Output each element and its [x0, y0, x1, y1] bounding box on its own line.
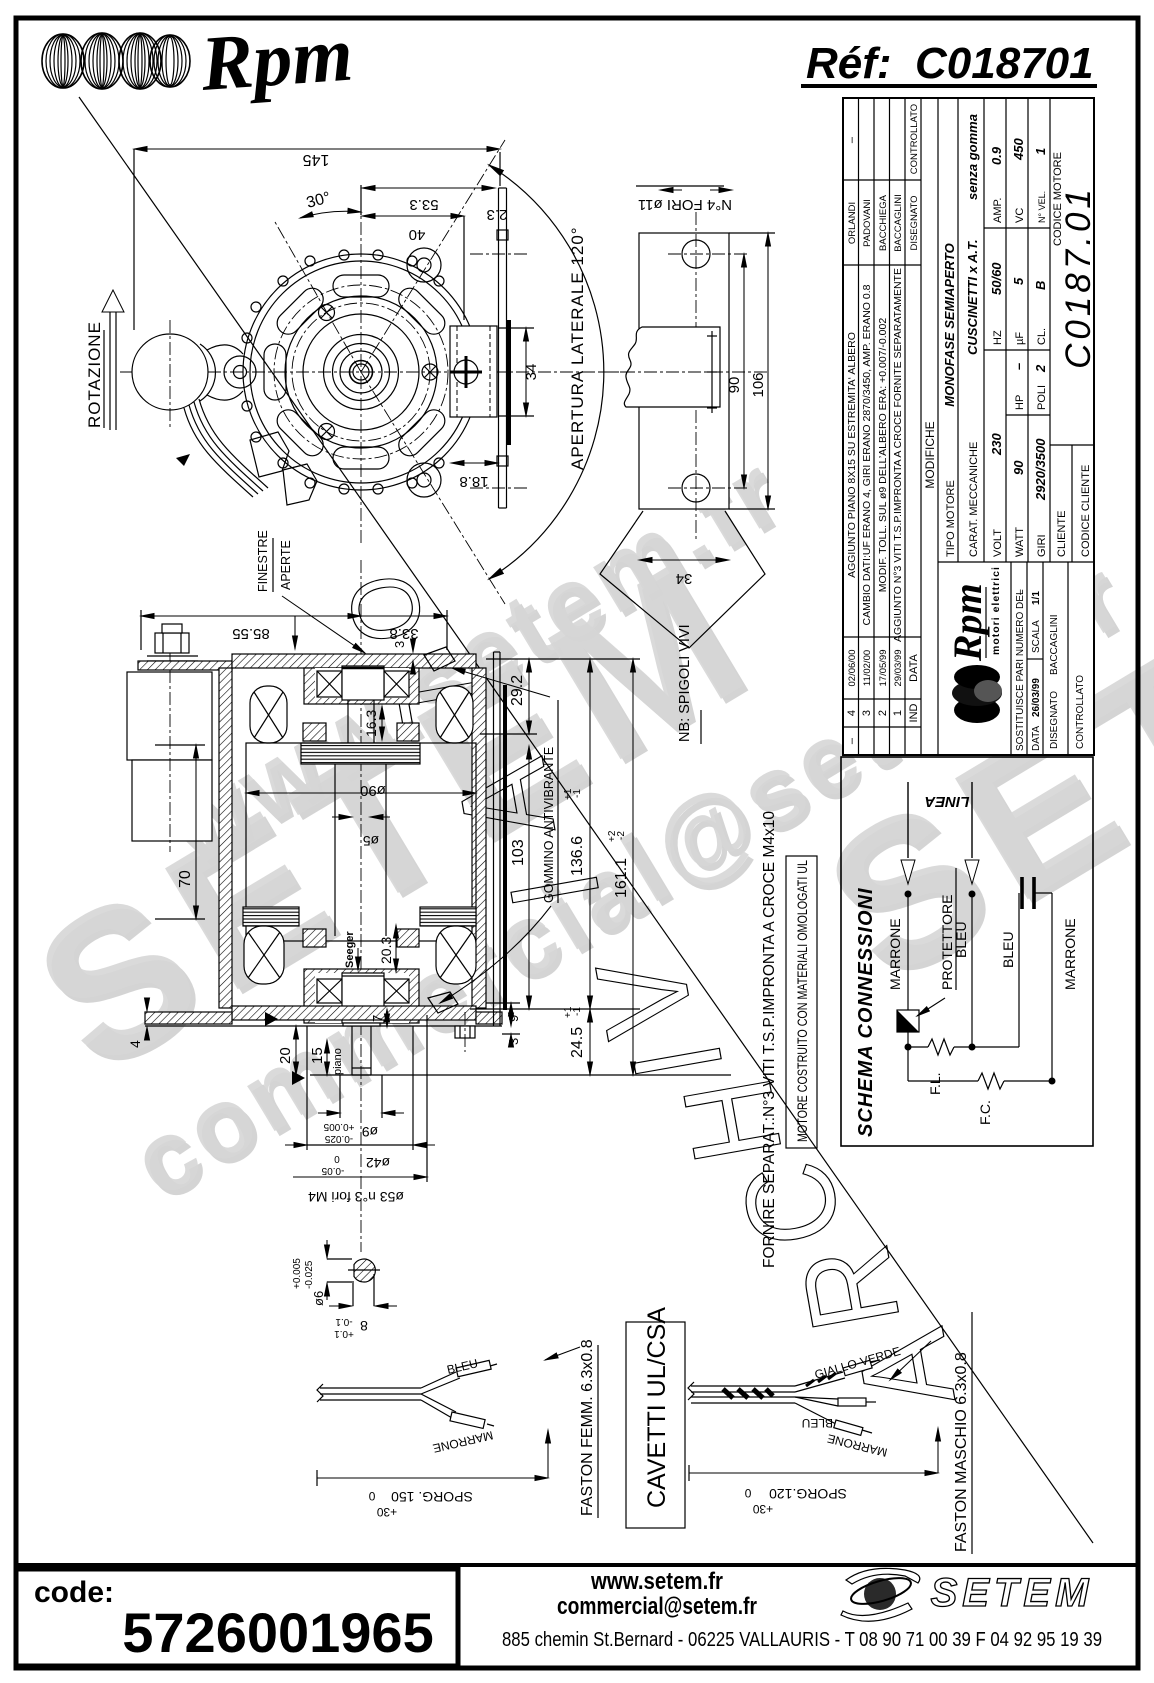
svg-text:20.3: 20.3 — [378, 937, 394, 964]
svg-text:FASTON MASCHIO 6.3x0.8: FASTON MASCHIO 6.3x0.8 — [953, 1352, 970, 1552]
svg-text:29.2: 29.2 — [509, 675, 526, 706]
svg-text:1: 1 — [1033, 148, 1048, 155]
svg-text:FORNIRE SEPARAT.:N°3 VITI T.S.: FORNIRE SEPARAT.:N°3 VITI T.S.P.IMPRONTA… — [761, 811, 778, 1268]
svg-text:3: 3 — [506, 1038, 521, 1045]
svg-text:µF: µF — [1014, 332, 1026, 345]
svg-text:33.8: 33.8 — [389, 625, 418, 642]
svg-text:HP: HP — [1014, 395, 1026, 410]
svg-text:0: 0 — [744, 1486, 751, 1500]
svg-text:161.1: 161.1 — [613, 858, 630, 898]
svg-text:ø5: ø5 — [363, 833, 380, 849]
svg-text:ø90: ø90 — [360, 782, 386, 799]
svg-text:85.55: 85.55 — [232, 625, 270, 642]
svg-text:29/03/99: 29/03/99 — [893, 650, 904, 687]
svg-text:0.9: 0.9 — [989, 146, 1004, 165]
svg-text:450: 450 — [1011, 138, 1026, 161]
svg-text:136.6: 136.6 — [569, 836, 586, 876]
svg-text:0: 0 — [334, 1153, 340, 1164]
svg-text:BLEU: BLEU — [953, 921, 969, 958]
svg-text:70: 70 — [177, 870, 194, 888]
svg-text:ORLANDI: ORLANDI — [847, 202, 858, 244]
svg-text:GOMMINO ANTIVIBRANTE: GOMMINO ANTIVIBRANTE — [542, 747, 556, 903]
svg-text:BACCHIEGA: BACCHIEGA — [878, 194, 889, 251]
svg-text:POLI: POLI — [1036, 385, 1048, 410]
svg-text:PADOVANI: PADOVANI — [862, 199, 873, 247]
svg-text:-0.1: -0.1 — [335, 1316, 353, 1327]
svg-text:www.setem.fr: www.setem.fr — [590, 1568, 723, 1595]
svg-text:18.8: 18.8 — [459, 473, 488, 490]
svg-text:HZ: HZ — [992, 330, 1004, 345]
svg-text:AGGIUNTO N°3 VITI T.S.P.IMPRON: AGGIUNTO N°3 VITI T.S.P.IMPRONTA A CROCE… — [892, 268, 904, 642]
svg-text:–: – — [846, 737, 858, 744]
svg-text:34: 34 — [523, 364, 540, 381]
svg-text:commercial@setem.fr: commercial@setem.fr — [557, 1593, 757, 1620]
svg-text:Seeger: Seeger — [344, 931, 356, 968]
svg-text:230: 230 — [989, 433, 1004, 456]
svg-text:SPORG.120: SPORG.120 — [769, 1486, 847, 1502]
svg-text:2: 2 — [1033, 364, 1048, 373]
svg-text:+0.005: +0.005 — [323, 1121, 354, 1132]
svg-text:AMP.: AMP. — [992, 198, 1004, 223]
svg-text:2920/3500: 2920/3500 — [1033, 438, 1048, 501]
svg-text:FINESTRE: FINESTRE — [256, 530, 270, 592]
svg-text:APERTURA LATERALE 120°: APERTURA LATERALE 120° — [568, 226, 587, 470]
svg-text:8: 8 — [360, 1318, 368, 1334]
svg-text:GIRI: GIRI — [1036, 534, 1048, 557]
svg-text:senza gomma: senza gomma — [965, 114, 980, 200]
svg-text:WATT: WATT — [1014, 527, 1026, 557]
svg-text:MARRONE: MARRONE — [1062, 918, 1078, 990]
svg-text:BACCAGLINI: BACCAGLINI — [1049, 614, 1060, 675]
svg-text:17/05/99: 17/05/99 — [878, 650, 889, 687]
svg-text:motori elettrici: motori elettrici — [990, 566, 1002, 655]
svg-text:24.5: 24.5 — [569, 1027, 586, 1058]
svg-text:MODIF. TOLL. SUL ø9 DELL’ALBER: MODIF. TOLL. SUL ø9 DELL’ALBERO ERA: +0.… — [877, 318, 889, 593]
svg-text:15: 15 — [309, 1047, 326, 1064]
svg-text:SCALA: SCALA — [1031, 620, 1042, 653]
svg-text:106: 106 — [750, 372, 767, 397]
svg-text:1: 1 — [892, 710, 904, 716]
svg-text:DISEGNATO: DISEGNATO — [909, 195, 920, 250]
svg-text:02/06/00: 02/06/00 — [847, 650, 858, 687]
svg-text:CARAT. MECCANICHE: CARAT. MECCANICHE — [968, 442, 980, 557]
svg-text:–: – — [1011, 363, 1026, 370]
svg-text:53.3: 53.3 — [409, 196, 438, 213]
svg-text:ROTAZIONE: ROTAZIONE — [85, 321, 104, 428]
svg-text:11/02/00: 11/02/00 — [862, 650, 873, 686]
svg-text:CAVETTI UL/CSA: CAVETTI UL/CSA — [643, 1307, 671, 1508]
svg-text:7: 7 — [370, 1015, 385, 1022]
svg-text:Rpm: Rpm — [945, 583, 990, 662]
svg-text:20: 20 — [277, 1047, 294, 1064]
svg-text:90: 90 — [726, 377, 743, 394]
svg-text:+0.005: +0.005 — [292, 1258, 303, 1289]
svg-text:MODIFICHE: MODIFICHE — [923, 421, 937, 488]
svg-text:4: 4 — [127, 1040, 143, 1048]
svg-text:5: 5 — [1011, 277, 1026, 285]
svg-text:ø42: ø42 — [366, 1155, 390, 1171]
svg-text:CONTROLLATO: CONTROLLATO — [1075, 675, 1086, 749]
svg-text:LINEA: LINEA — [925, 793, 970, 810]
svg-text:-0.05: -0.05 — [321, 1165, 344, 1176]
svg-text:ø9: ø9 — [362, 1124, 379, 1140]
svg-text:SPORG. 150: SPORG. 150 — [391, 1489, 473, 1505]
svg-text:DISEGNATO: DISEGNATO — [1049, 691, 1060, 749]
svg-text:F.C.: F.C. — [977, 1100, 993, 1125]
svg-text:MONOFASE SEMIAPERTO: MONOFASE SEMIAPERTO — [942, 243, 957, 407]
svg-text:B: B — [1033, 281, 1048, 290]
svg-text:FASTON FEMM. 6.3x0.8: FASTON FEMM. 6.3x0.8 — [579, 1339, 596, 1516]
svg-text:MARRONE: MARRONE — [887, 918, 903, 990]
svg-text:DATA: DATA — [1031, 725, 1042, 751]
svg-text:VOLT: VOLT — [992, 529, 1004, 557]
svg-text:DATA: DATA — [908, 653, 920, 681]
svg-text:–: – — [846, 136, 858, 143]
svg-text:16.3: 16.3 — [363, 710, 379, 737]
svg-text:AGGIUNTO PIANO 8X15 SU ESTREMI: AGGIUNTO PIANO 8X15 SU ESTREMITA‘ ALBERO — [846, 332, 858, 578]
svg-text:SETEM: SETEM — [931, 1571, 1094, 1615]
svg-text:26/03/99: 26/03/99 — [1031, 678, 1042, 717]
svg-text:BLEU: BLEU — [802, 1416, 833, 1430]
svg-text:1/1: 1/1 — [1031, 591, 1042, 605]
svg-text:145: 145 — [303, 151, 330, 168]
svg-text:-1: -1 — [572, 1007, 583, 1016]
svg-text:40: 40 — [409, 226, 426, 243]
svg-text:2.3: 2.3 — [487, 206, 508, 223]
svg-text:3: 3 — [861, 710, 873, 716]
svg-text:NB: SPIGOLI VIVI: NB: SPIGOLI VIVI — [677, 624, 693, 742]
svg-text:code:: code: — [34, 1576, 114, 1609]
svg-text:TIPO MOTORE: TIPO MOTORE — [945, 480, 957, 557]
svg-text:CODICE CLIENTE: CODICE CLIENTE — [1080, 465, 1092, 557]
svg-text:–: – — [1015, 589, 1026, 595]
svg-text:CUSCINETTI x A.T.: CUSCINETTI x A.T. — [965, 239, 980, 355]
svg-text:CL.: CL. — [1036, 328, 1048, 345]
svg-text:MOTORE COSTRUITO CON MATERIALI: MOTORE COSTRUITO CON MATERIALI OMOLOGATI… — [794, 860, 810, 1142]
svg-text:IND: IND — [908, 703, 920, 722]
svg-text:BLEU: BLEU — [1000, 931, 1016, 968]
svg-text:50/60: 50/60 — [989, 262, 1004, 295]
svg-text:BACCAGLINI: BACCAGLINI — [893, 194, 904, 252]
svg-text:F.L.: F.L. — [927, 1072, 943, 1095]
svg-text:-0.025: -0.025 — [324, 1133, 353, 1144]
svg-text:-1: -1 — [572, 789, 583, 798]
svg-text:C0187.01: C0187.01 — [1059, 185, 1098, 369]
svg-text:CONTROLLATO: CONTROLLATO — [909, 104, 920, 174]
svg-text:885 chemin St.Bernard - 0622: 885 chemin St.Bernard - 06225 VALLAURIS … — [502, 1629, 1102, 1651]
svg-text:SOSTITUISCE PARI NUMERO DEL: SOSTITUISCE PARI NUMERO DEL — [1015, 589, 1026, 751]
svg-text:3: 3 — [392, 641, 407, 648]
svg-text:VC: VC — [1014, 208, 1026, 223]
svg-text:9: 9 — [506, 1015, 521, 1022]
svg-text:90: 90 — [1011, 460, 1026, 475]
svg-text:4: 4 — [846, 710, 858, 716]
svg-text:5726001965: 5726001965 — [122, 1601, 433, 1664]
svg-text:+30: +30 — [376, 1505, 397, 1519]
svg-text:CAMBIO DATI:UF ERANO 4, GIRI E: CAMBIO DATI:UF ERANO 4, GIRI ERANO 2870/… — [861, 284, 873, 625]
svg-text:N° VEL.: N° VEL. — [1037, 191, 1047, 223]
svg-text:-2: -2 — [616, 831, 627, 840]
svg-text:SCHEMA CONNESSIONI: SCHEMA CONNESSIONI — [855, 887, 877, 1137]
svg-text:2: 2 — [877, 710, 889, 716]
svg-text:103: 103 — [510, 839, 527, 866]
svg-text:Rpm: Rpm — [197, 10, 355, 107]
svg-text:piano: piano — [332, 1048, 344, 1075]
svg-text:+30: +30 — [752, 1502, 773, 1516]
svg-text:-0.025: -0.025 — [304, 1260, 315, 1289]
svg-text:ø53 n°3 fori M4: ø53 n°3 fori M4 — [308, 1189, 404, 1205]
svg-text:+0.1: +0.1 — [334, 1328, 354, 1339]
svg-text:CLIENTE: CLIENTE — [1056, 511, 1068, 557]
svg-text:ø6: ø6 — [311, 1291, 326, 1306]
svg-text:Réf:: Réf: — [806, 39, 892, 88]
svg-text:34: 34 — [676, 570, 693, 587]
svg-text:N°4 FORI ø11: N°4 FORI ø11 — [638, 196, 732, 213]
svg-text:APERTE: APERTE — [279, 540, 293, 590]
svg-text:C018701: C018701 — [915, 39, 1094, 88]
svg-text:0: 0 — [368, 1489, 375, 1503]
